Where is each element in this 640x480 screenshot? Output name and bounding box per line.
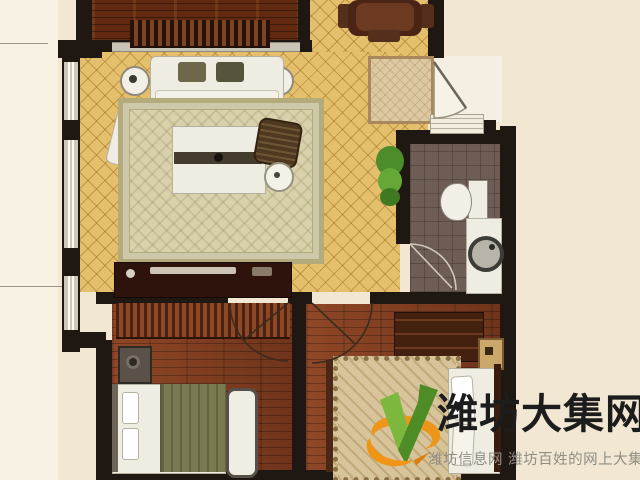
- bedroom-right-door-leaf: [312, 303, 355, 344]
- floor-plan-image: 潍坊大集网 潍坊信息网 潍坊百姓的网上大集: [0, 0, 640, 480]
- bedroom-left-door-arc: [230, 303, 288, 361]
- bathroom-door-leaf: [410, 244, 452, 288]
- watermark-subtitle: 潍坊信息网 潍坊百姓的网上大集: [428, 448, 640, 469]
- bedroom-left-door-leaf: [244, 303, 288, 340]
- watermark-title: 潍坊大集网: [437, 394, 640, 435]
